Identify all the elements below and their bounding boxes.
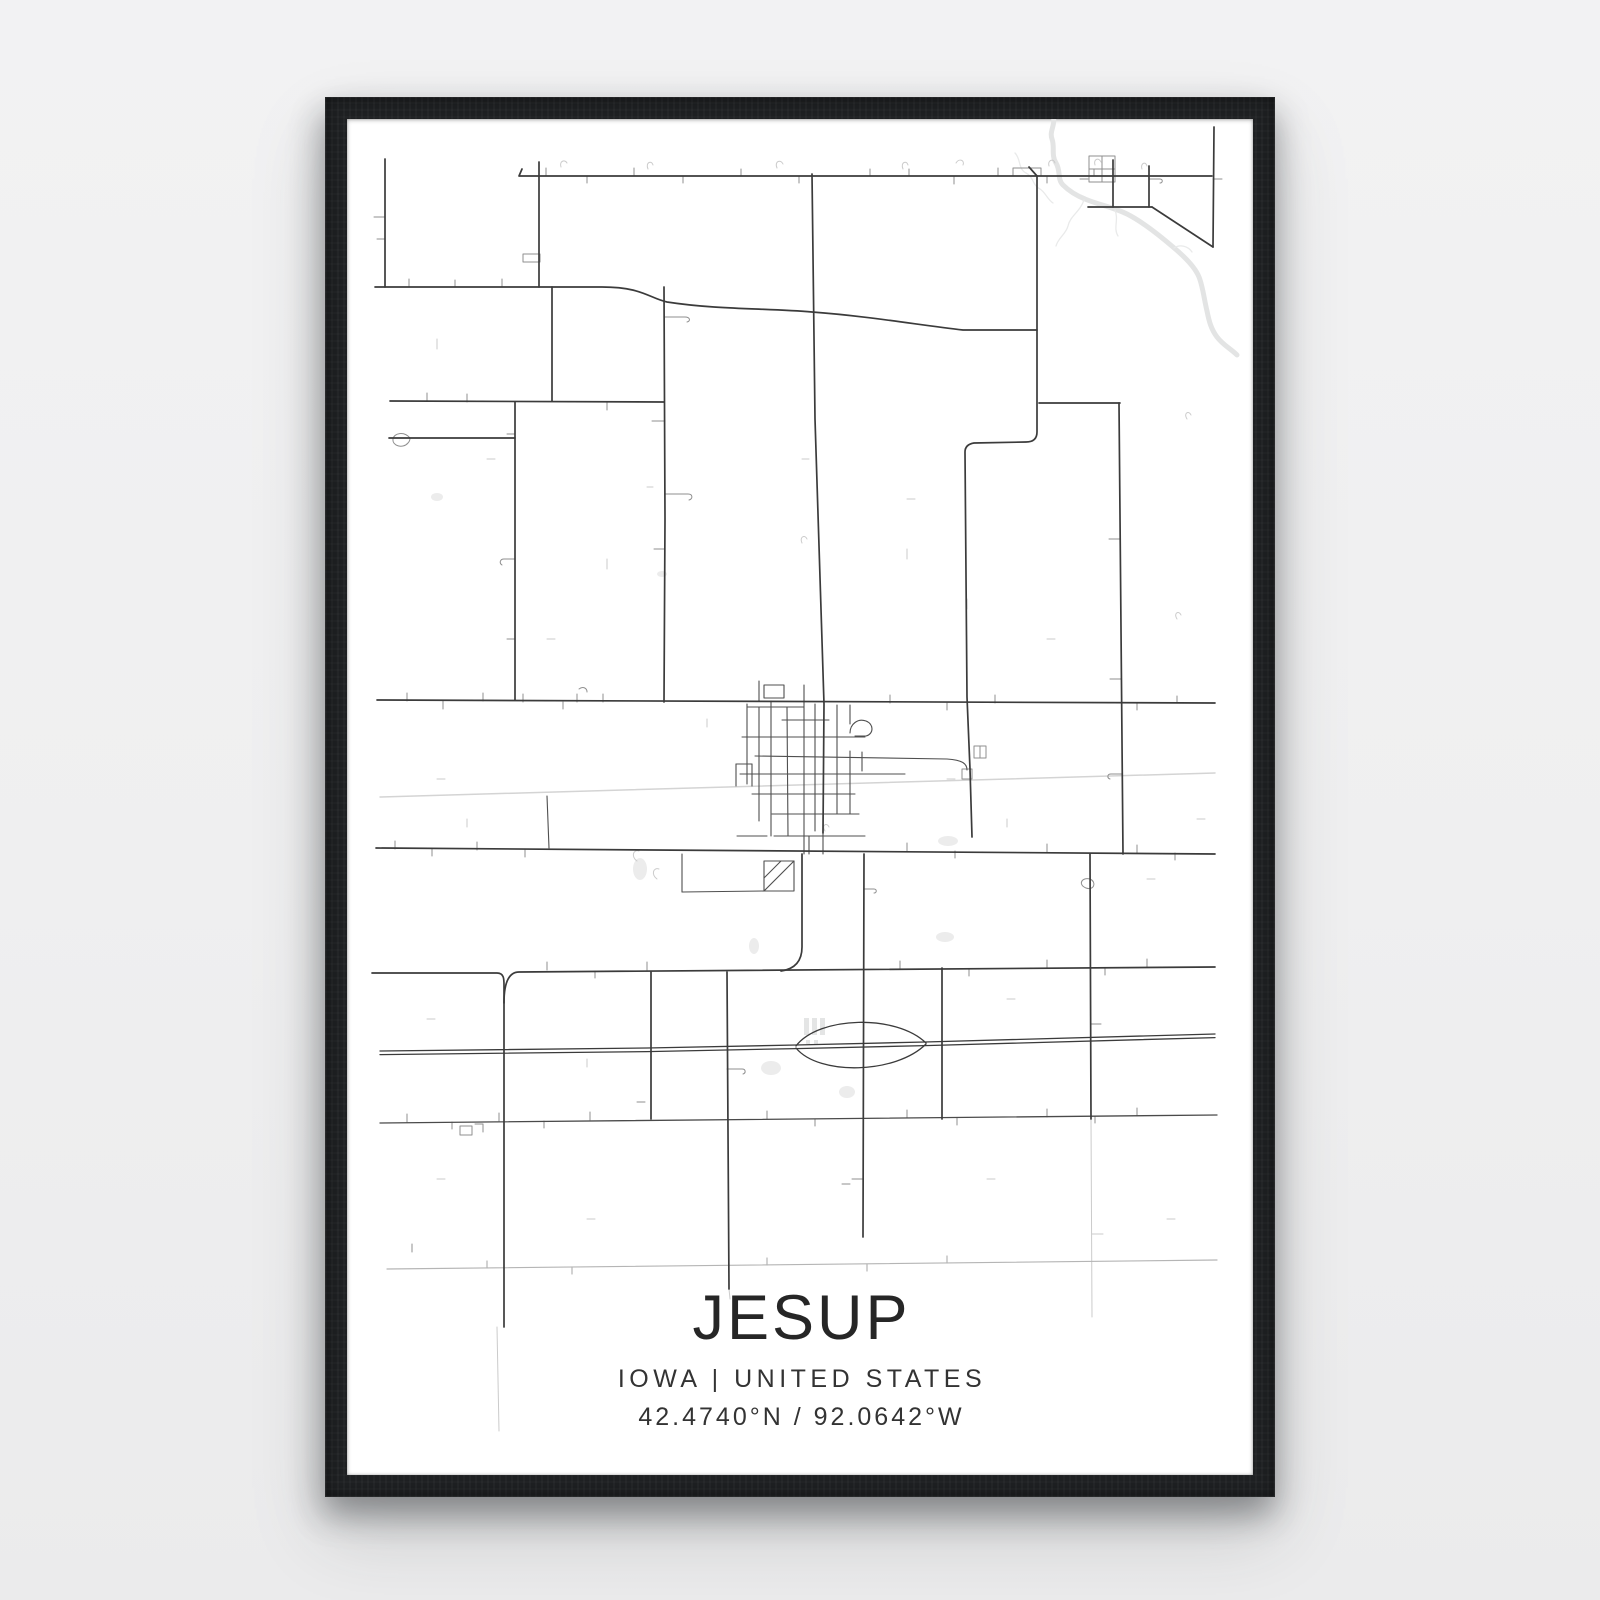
layer-highway [380,1022,1215,1067]
layer-streams [1015,153,1192,252]
layer-river [1051,119,1237,355]
page-background: { "poster": { "city": "JESUP", "region_l… [0,0,1600,1600]
layer-buildings [804,1018,825,1044]
layer-railway [380,773,1215,797]
layer-major-roads [372,127,1215,1327]
map-poster-paper: JESUP IOWA | UNITED STATES 42.4740°N / 9… [347,119,1253,1475]
layer-ponds [431,493,958,1098]
poster-frame: JESUP IOWA | UNITED STATES 42.4740°N / 9… [325,97,1275,1497]
street-map [347,119,1253,1475]
layer-light-details [427,159,1205,1431]
layer-minor-roads [374,156,1222,1252]
layer-rural-road [387,1256,1217,1274]
